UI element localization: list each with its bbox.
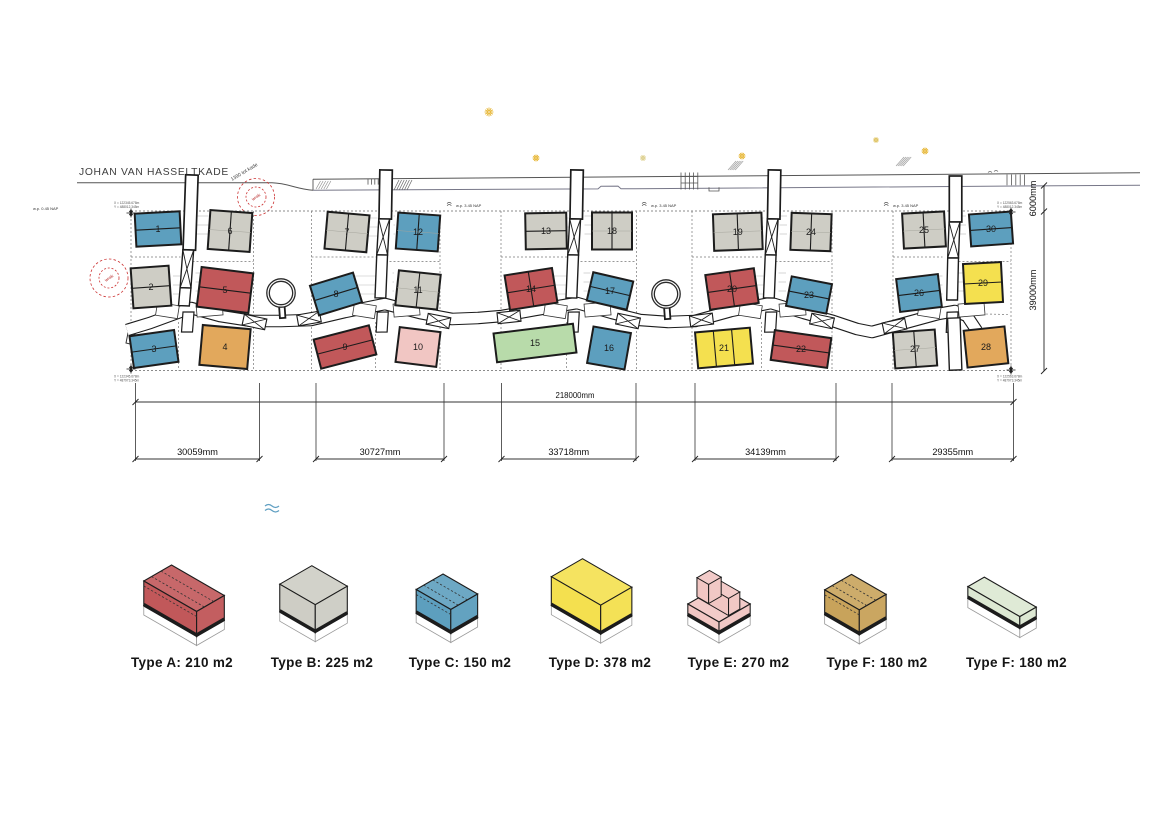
svg-text:w.p. 3.45 NAP: w.p. 3.45 NAP [456,203,482,208]
svg-text:w.p. 3.45 NAP: w.p. 3.45 NAP [893,203,919,208]
svg-text:12: 12 [413,227,423,237]
svg-text:29355mm: 29355mm [932,447,973,457]
svg-text:28: 28 [981,342,991,352]
svg-text:20: 20 [727,284,737,294]
svg-text:15: 15 [530,338,540,348]
svg-text:19: 19 [733,227,743,237]
svg-text:3: 3 [151,344,156,354]
svg-text:26: 26 [914,288,924,298]
svg-text:14: 14 [526,284,536,294]
svg-text:1: 1 [155,224,160,234]
svg-text:24: 24 [806,227,816,237]
svg-text:218000mm: 218000mm [555,391,594,400]
svg-text:6: 6 [227,226,232,236]
svg-text:21: 21 [719,343,729,353]
svg-text:22: 22 [796,344,806,354]
svg-text:25: 25 [919,225,929,235]
svg-text:29: 29 [978,278,988,288]
svg-text:Y = 488012.345m: Y = 488012.345m [997,205,1023,209]
svg-text:Type D: 378 m2: Type D: 378 m2 [549,655,652,670]
svg-text:18: 18 [607,226,617,236]
svg-text:Y = 487973.345m: Y = 487973.345m [997,379,1023,383]
svg-text:4: 4 [222,342,227,352]
svg-text:39000mm: 39000mm [1028,269,1038,310]
svg-text:Type B: 225 m2: Type B: 225 m2 [271,655,374,670]
svg-text:30727mm: 30727mm [360,447,401,457]
svg-text:8: 8 [333,289,338,299]
svg-text:5: 5 [222,285,227,295]
svg-text:Type F: 180 m2: Type F: 180 m2 [966,655,1067,670]
svg-text:27: 27 [910,344,920,354]
svg-text:13: 13 [541,226,551,236]
svg-text:9: 9 [342,342,347,352]
svg-text:7: 7 [344,227,349,237]
svg-text:JOHAN VAN HASSELTKADE: JOHAN VAN HASSELTKADE [79,167,229,178]
svg-text:Type F: 180 m2: Type F: 180 m2 [826,655,927,670]
svg-text:30: 30 [986,224,996,234]
svg-text:34139mm: 34139mm [745,447,786,457]
svg-text:w.p. 0.45 NAP: w.p. 0.45 NAP [33,206,59,211]
svg-text:Y = 488012.345m: Y = 488012.345m [114,205,140,209]
svg-text:Y = 487973.345m: Y = 487973.345m [114,379,140,383]
svg-text:w.p. 3.45 NAP: w.p. 3.45 NAP [651,203,677,208]
svg-text:11: 11 [413,285,422,295]
svg-text:33718mm: 33718mm [548,447,589,457]
svg-text:2: 2 [148,282,153,292]
svg-text:10: 10 [413,342,423,352]
svg-text:23: 23 [804,290,814,300]
svg-text:6000mm: 6000mm [1028,180,1038,216]
svg-text:Type A: 210 m2: Type A: 210 m2 [131,655,233,670]
svg-text:16: 16 [604,343,614,353]
svg-text:Type E: 270 m2: Type E: 270 m2 [688,655,790,670]
svg-text:30059mm: 30059mm [177,447,218,457]
svg-text:17: 17 [605,286,615,296]
svg-text:Type C: 150 m2: Type C: 150 m2 [409,655,512,670]
